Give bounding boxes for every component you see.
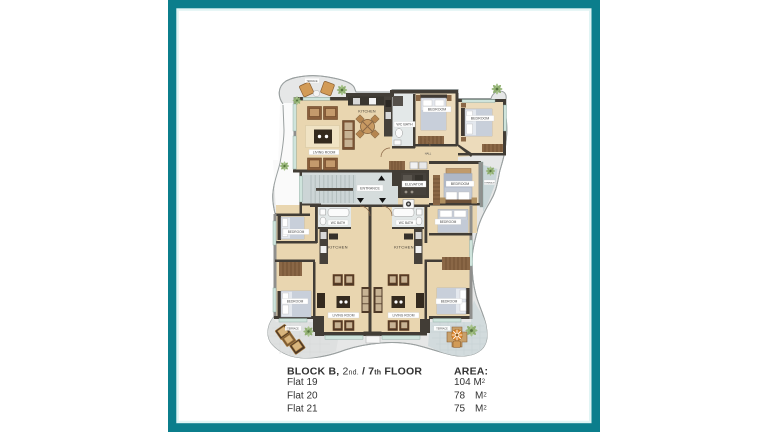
svg-text:KITCHEN: KITCHEN <box>394 245 414 250</box>
svg-text:BEDROOM: BEDROOM <box>287 300 304 304</box>
svg-text:BEDROOM: BEDROOM <box>440 220 457 224</box>
svg-text:WC BATH: WC BATH <box>399 221 414 225</box>
svg-text:BEDROOM: BEDROOM <box>451 182 470 186</box>
svg-text:AREA:: AREA: <box>454 366 488 378</box>
svg-text:75: 75 <box>454 404 466 415</box>
svg-text:HALL: HALL <box>425 152 432 156</box>
svg-text:Flat 20: Flat 20 <box>287 390 318 401</box>
svg-text:WC BATH: WC BATH <box>331 221 346 225</box>
svg-text:ELEVATOR: ELEVATOR <box>405 182 424 186</box>
svg-text:TERRACE: TERRACE <box>484 182 495 185</box>
svg-text:BEDROOM: BEDROOM <box>441 300 458 304</box>
svg-text:BEDROOM: BEDROOM <box>288 230 305 234</box>
svg-text:LIVING ROOM: LIVING ROOM <box>313 151 336 155</box>
svg-text:KITCHEN: KITCHEN <box>358 109 376 113</box>
svg-text:Flat 21: Flat 21 <box>287 404 318 415</box>
svg-text:ENTRANCE: ENTRANCE <box>360 186 380 190</box>
svg-text:TERRACE: TERRACE <box>307 80 318 83</box>
svg-text:TERRACE: TERRACE <box>287 328 299 331</box>
svg-text:WC BATH: WC BATH <box>396 123 413 127</box>
svg-text:LIVING ROOM: LIVING ROOM <box>333 314 355 318</box>
svg-text:KITCHEN: KITCHEN <box>328 245 348 250</box>
svg-text:LIVING ROOM: LIVING ROOM <box>393 314 415 318</box>
svg-text:TERRACE: TERRACE <box>436 328 448 331</box>
svg-text:Flat 19: Flat 19 <box>287 377 318 388</box>
svg-text:78: 78 <box>454 390 466 401</box>
svg-text:104 M2: 104 M2 <box>454 377 486 388</box>
svg-text:BEDROOM: BEDROOM <box>428 108 447 112</box>
svg-text:BEDROOM: BEDROOM <box>471 117 490 121</box>
